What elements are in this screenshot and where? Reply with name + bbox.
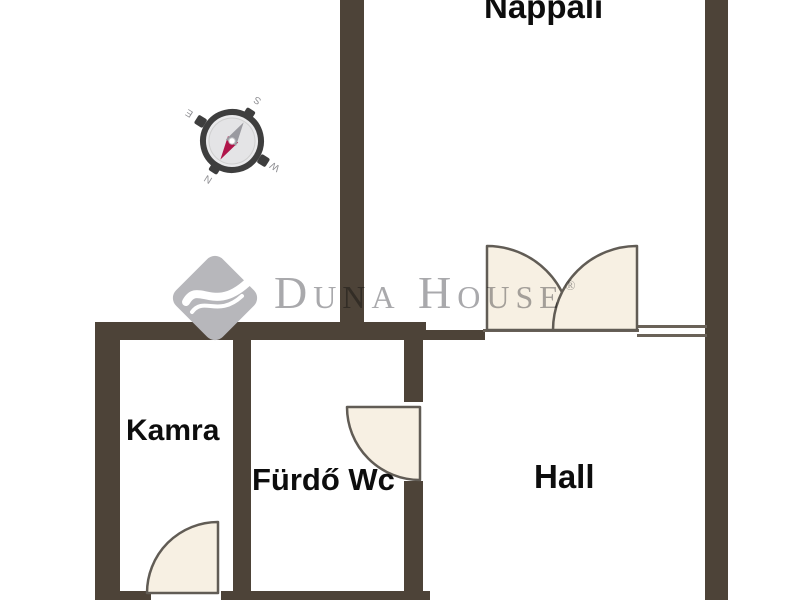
compass-letter-south: S: [252, 93, 264, 106]
compass-letter-north: N: [202, 172, 214, 185]
compass-letter-east: E: [184, 106, 196, 119]
floor-plan: Nappali Kamra Fürdő Wc Hall Duna House®: [0, 0, 800, 600]
compass-rose-icon: N E S W: [0, 0, 800, 600]
compass-letter-west: W: [268, 159, 282, 174]
